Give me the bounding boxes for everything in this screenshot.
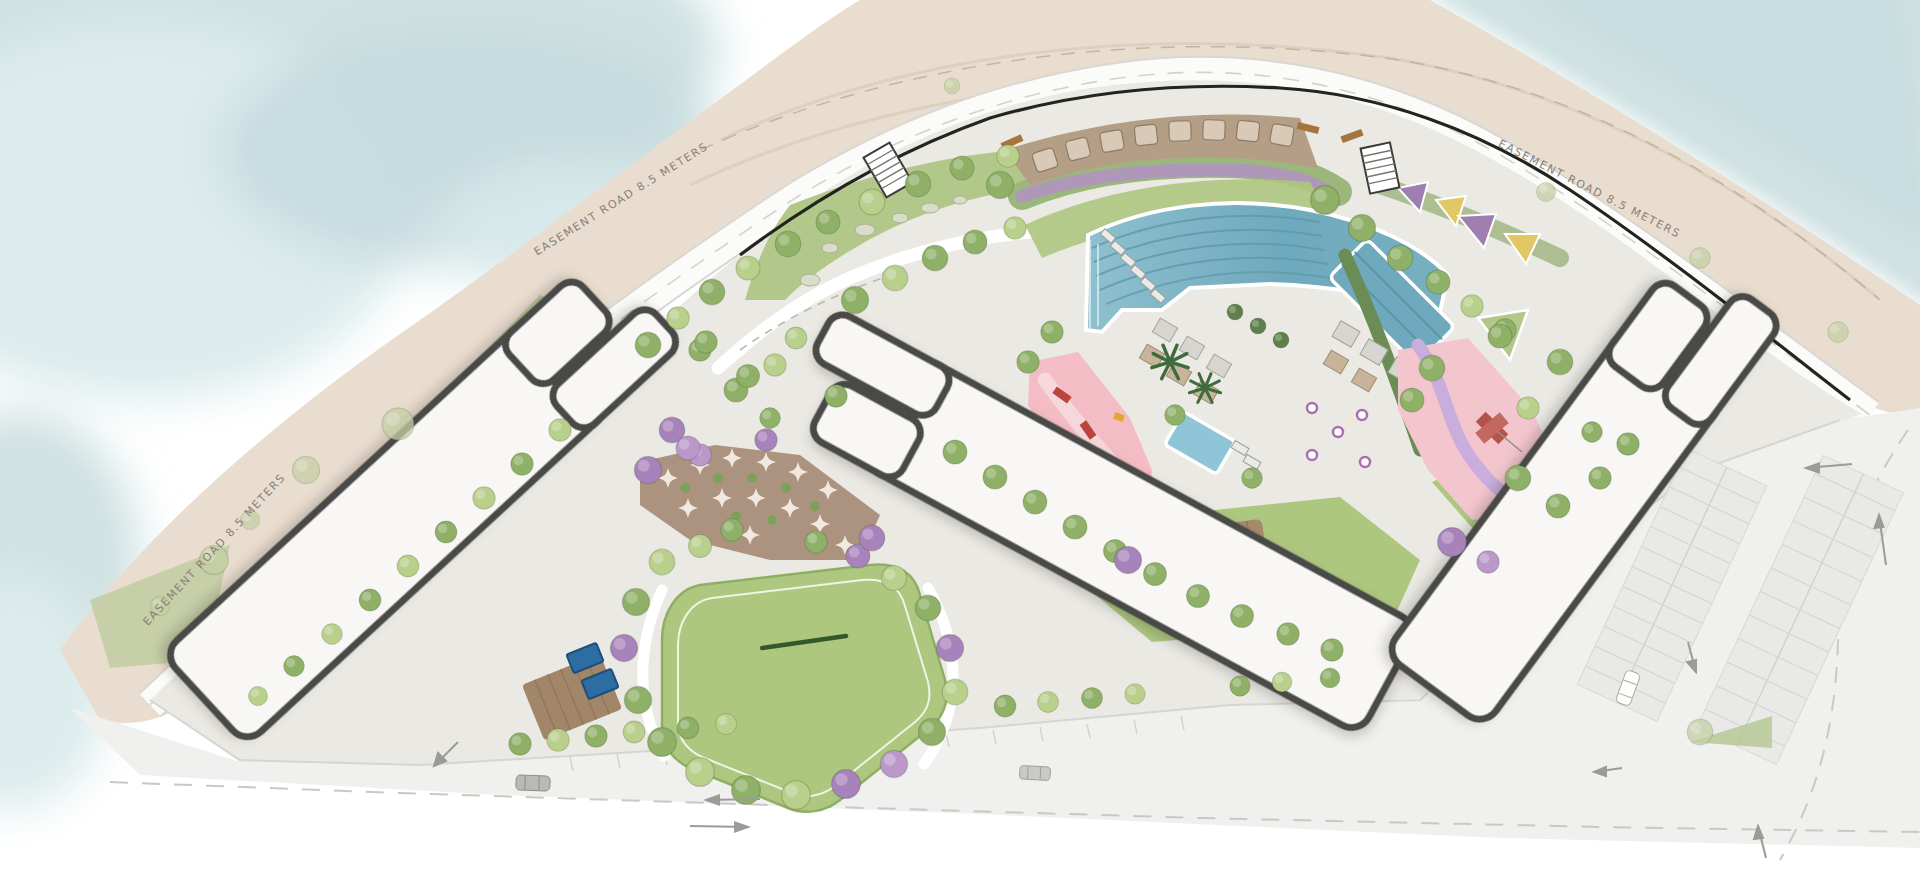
car — [516, 775, 551, 791]
site-plan-svg: EASEMENT ROAD 8.5 METERS EASEMENT ROAD 8… — [0, 0, 1920, 880]
car — [1019, 765, 1050, 780]
site-plan-canvas: EASEMENT ROAD 8.5 METERS EASEMENT ROAD 8… — [0, 0, 1920, 880]
